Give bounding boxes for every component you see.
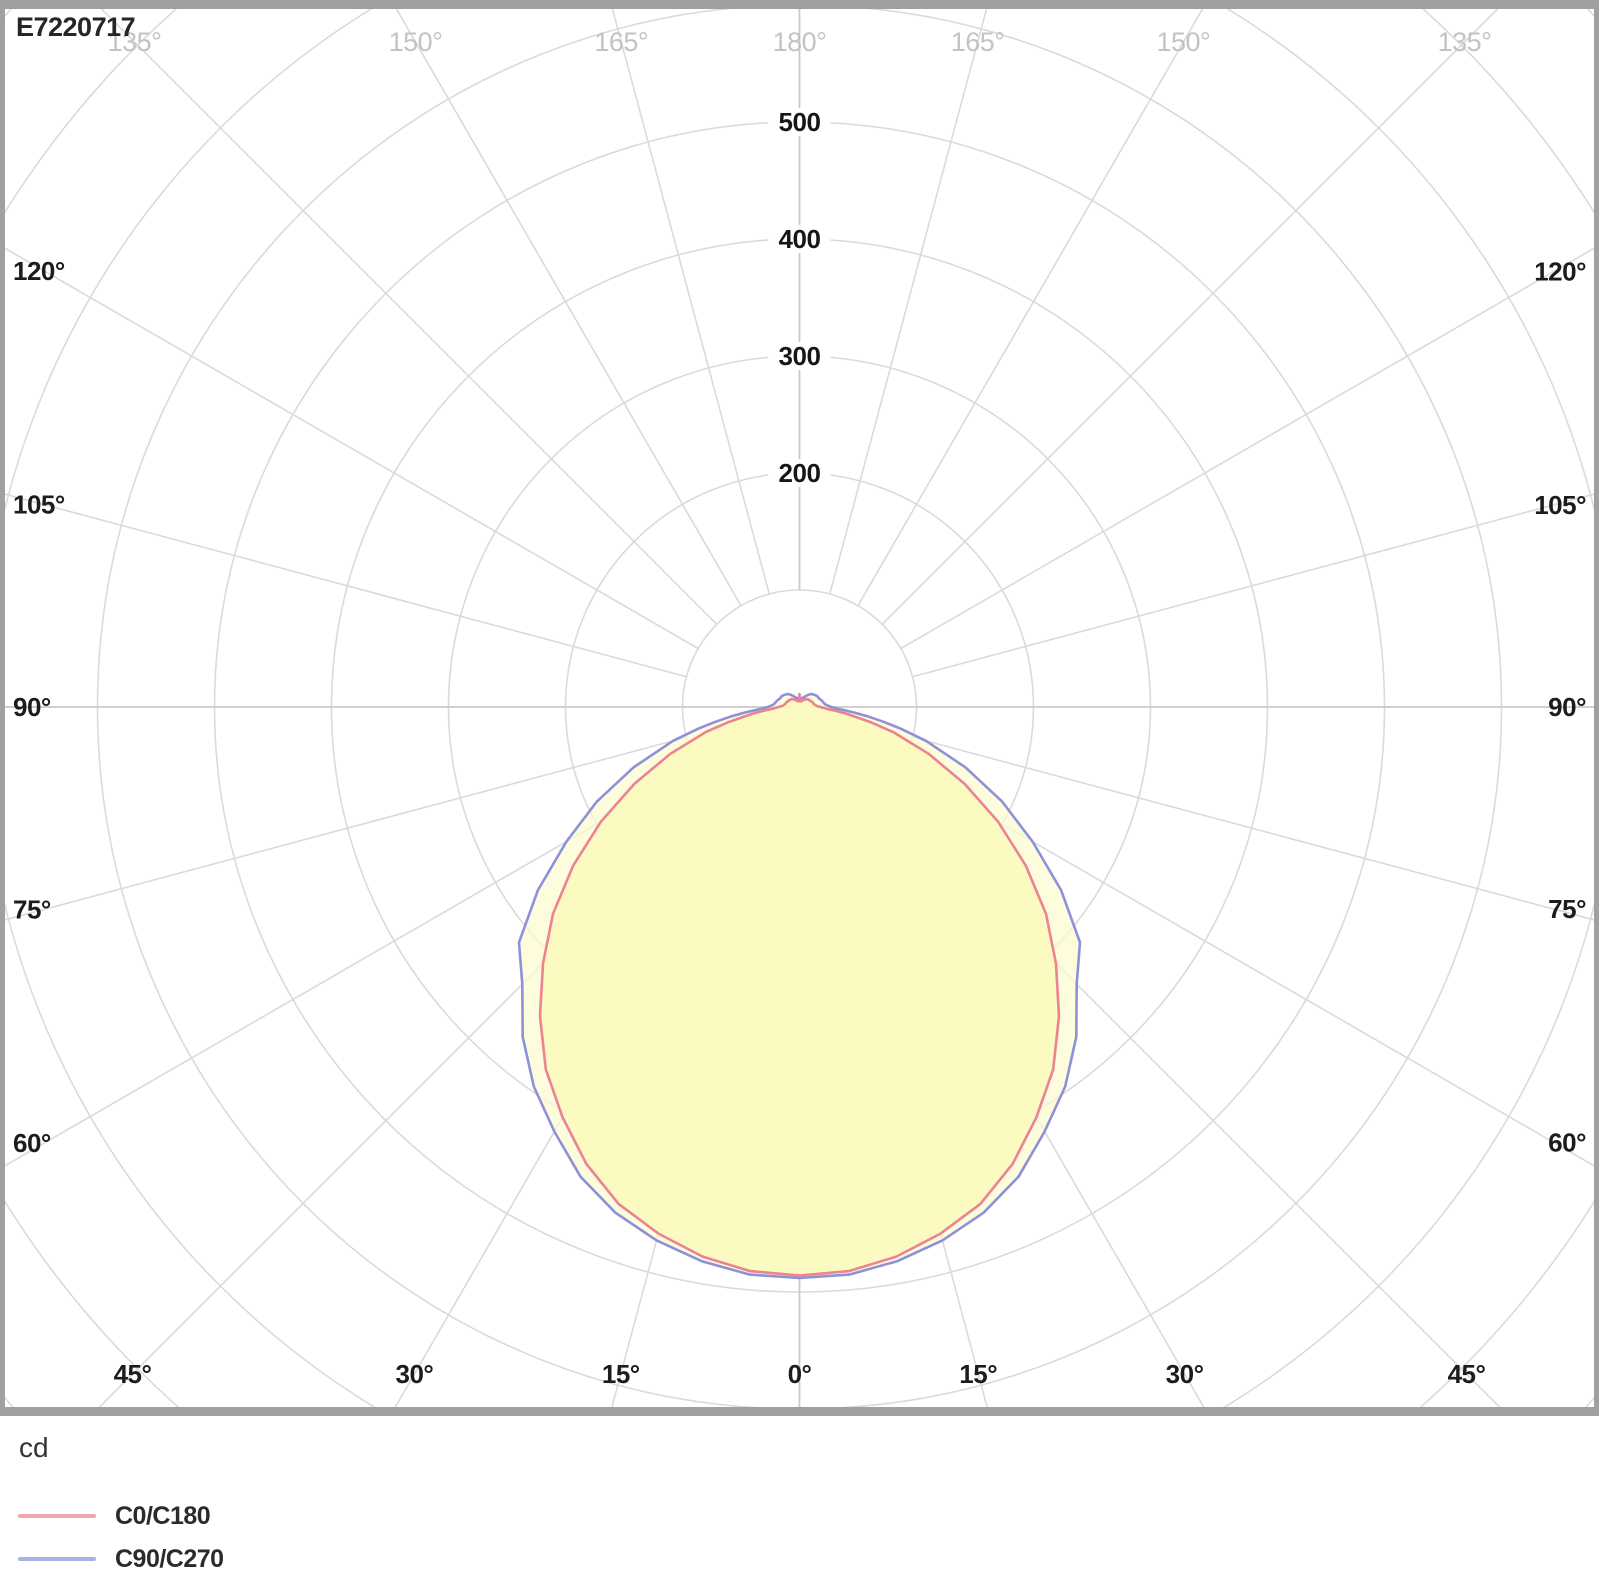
radial-tick-400: 400 — [779, 224, 821, 254]
angle-label-165-right: 165° — [951, 27, 1005, 57]
legend: cd C0/C180 C90/C270 — [0, 1420, 1599, 1582]
frame-left — [0, 0, 5, 1416]
angle-label-60-right: 60° — [1548, 1128, 1586, 1158]
polar-chart-svg: 2003004005000°15°15°30°30°45°45°60°60°75… — [0, 0, 1599, 1420]
angle-label-60-left: 60° — [13, 1128, 51, 1158]
legend-swatch-c90-c270 — [18, 1557, 96, 1561]
legend-swatch-c0-c180 — [18, 1514, 96, 1518]
angle-label-75-left: 75° — [13, 894, 51, 924]
angle-label-75-right: 75° — [1548, 894, 1586, 924]
angle-label-150-left: 150° — [389, 27, 443, 57]
angle-label-120-right: 120° — [1534, 256, 1586, 286]
angle-label-15-right: 15° — [959, 1359, 997, 1389]
angle-label-105-left: 105° — [13, 490, 65, 520]
angle-label-45-left: 45° — [114, 1359, 152, 1389]
chart-title: E7220717 — [16, 12, 135, 42]
angle-label-105-right: 105° — [1534, 490, 1586, 520]
angle-label-90-left: 90° — [13, 692, 51, 722]
radial-tick-500: 500 — [779, 107, 821, 137]
angle-label-45-right: 45° — [1448, 1359, 1486, 1389]
angle-label-15-left: 15° — [602, 1359, 640, 1389]
radial-tick-300: 300 — [779, 341, 821, 371]
legend-entry-c0-c180: C0/C180 — [18, 1503, 210, 1529]
frame-top — [0, 0, 1599, 9]
angle-label-165-left: 165° — [594, 27, 648, 57]
frame-bottom — [0, 1407, 1599, 1416]
angle-label-135-right: 135° — [1438, 27, 1492, 57]
angle-label-180-right: 180° — [773, 27, 827, 57]
polar-intensity-chart: 2003004005000°15°15°30°30°45°45°60°60°75… — [0, 0, 1599, 1420]
radial-tick-200: 200 — [779, 458, 821, 488]
angle-label-90-right: 90° — [1548, 692, 1586, 722]
angle-label-30-left: 30° — [395, 1359, 433, 1389]
angle-label-0-right: 0° — [788, 1359, 812, 1389]
legend-entry-c90-c270: C90/C270 — [18, 1546, 224, 1572]
angle-label-120-left: 120° — [13, 256, 65, 286]
legend-label-c0-c180: C0/C180 — [115, 1502, 210, 1531]
angle-label-30-right: 30° — [1166, 1359, 1204, 1389]
angle-label-150-right: 150° — [1157, 27, 1211, 57]
legend-label-c90-c270: C90/C270 — [115, 1545, 224, 1574]
frame-right — [1594, 0, 1599, 1416]
units-label: cd — [19, 1432, 49, 1464]
